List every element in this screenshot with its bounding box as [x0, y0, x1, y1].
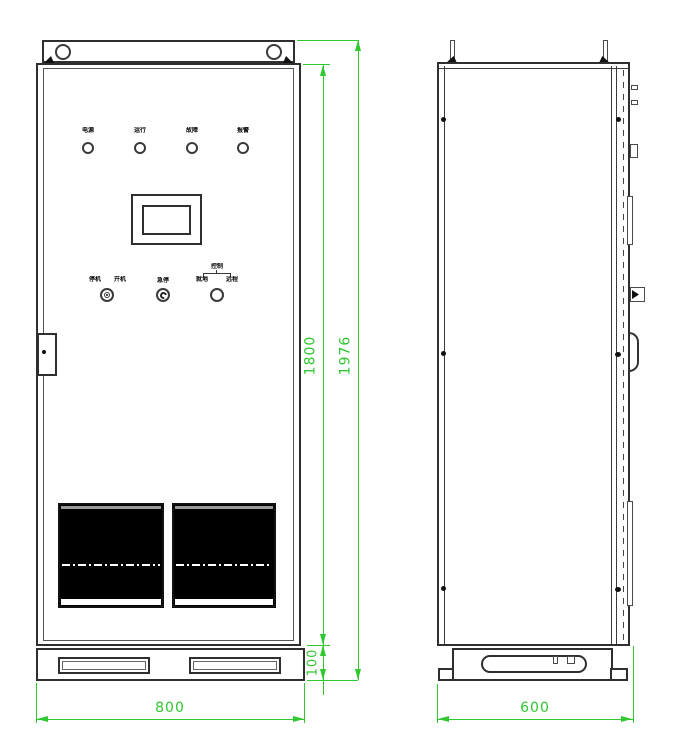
hmi-display-screen	[142, 205, 191, 235]
vent-right-centerline	[176, 564, 272, 566]
dim-text-1800: 1800	[304, 333, 319, 379]
arrow-800-right	[293, 716, 304, 722]
arrow-1976-top	[355, 40, 361, 51]
screw-front-bottom	[615, 587, 621, 592]
mode-button	[210, 288, 224, 302]
vent-panel-left	[58, 503, 164, 608]
hinge-nub-second	[631, 100, 638, 105]
hinge-block-upper	[630, 144, 638, 158]
arrow-1976-bottom	[355, 669, 361, 680]
mode-option-labels: 就地 远程	[196, 276, 238, 284]
cabinet-body-side	[437, 62, 630, 646]
indicator-label-4: 报警	[227, 127, 259, 135]
indicator-lamp-1	[82, 142, 94, 154]
dim-line-1800	[323, 65, 324, 645]
door-latch-housing	[630, 287, 645, 302]
vent-right-bottom-strip	[175, 599, 273, 605]
ext-line-800-right	[304, 683, 305, 723]
ext-line-600-right	[633, 646, 634, 723]
vent-left-top-strip	[61, 506, 161, 509]
selector-labels: 停机 开机	[89, 276, 126, 284]
screw-rear-bottom	[441, 586, 446, 591]
screw-rear-mid	[441, 351, 446, 356]
arrow-1800-top	[320, 65, 326, 76]
base-slot-right-inner	[193, 661, 277, 670]
dim-line-800	[36, 719, 305, 720]
arrow-100-top	[320, 645, 326, 656]
base-foot-rear	[438, 668, 454, 681]
dim-line-600	[437, 719, 633, 720]
hinge-plate-upper	[627, 196, 633, 245]
mode-bracket-bar	[203, 273, 231, 274]
dim-text-100: 100	[306, 646, 321, 680]
base-cutout-tab-1	[553, 656, 558, 664]
emergency-label: 急停	[152, 277, 174, 285]
arrow-800-left	[37, 716, 48, 722]
side-front-frame-line	[611, 66, 612, 644]
selector-label-left: 停机	[89, 276, 101, 284]
mode-title-label: 控制	[206, 263, 228, 271]
base-slot-left	[58, 657, 150, 674]
indicator-lamp-3	[186, 142, 198, 154]
indicator-lamp-2	[134, 142, 146, 154]
arrow-600-left	[438, 716, 449, 722]
screw-front-top	[616, 117, 621, 122]
mode-option-right: 远程	[226, 276, 238, 284]
hinge-nub-top	[631, 85, 638, 90]
vent-panel-right	[172, 503, 276, 608]
ext-line-plate-top	[297, 40, 358, 41]
arrow-600-right	[621, 716, 632, 722]
lifting-eye-right-icon	[266, 44, 282, 60]
lifting-eye-left-icon	[55, 44, 71, 60]
vent-right-top-strip	[175, 506, 273, 509]
dim-line-1976	[358, 40, 359, 680]
vent-left-bottom-strip	[61, 599, 161, 605]
dim-text-800: 800	[148, 701, 192, 716]
door-lock-plate	[37, 333, 57, 376]
side-top-plate-line	[439, 68, 628, 69]
drawing-canvas: 电源 运行 故障 报警 停机 开机 急停 控制 就地 远程	[0, 0, 677, 734]
lifting-plate	[42, 40, 295, 63]
door-handle-side	[629, 332, 639, 372]
indicator-label-3: 故障	[176, 127, 208, 135]
screw-rear-top	[441, 117, 446, 122]
arrow-1800-bottom	[320, 634, 326, 645]
dim-text-600: 600	[513, 701, 557, 716]
emergency-button	[156, 288, 170, 302]
base-slot-right	[189, 657, 281, 674]
base-slot-left-inner	[62, 661, 146, 670]
selector-switch-dot	[106, 294, 108, 296]
vent-left-centerline	[62, 564, 160, 566]
indicator-lamp-4	[237, 142, 249, 154]
ext-line-base-bottom	[307, 680, 358, 681]
cabinet-base-front	[36, 648, 305, 681]
arrow-100-bottom	[320, 669, 326, 680]
emergency-button-arc	[158, 290, 168, 300]
screw-front-mid	[615, 352, 621, 357]
side-hinge-axis-dashed	[623, 70, 624, 642]
selector-label-right: 开机	[114, 276, 126, 284]
selector-switch-knob	[100, 288, 114, 302]
door-latch-tongue	[632, 290, 639, 299]
indicator-label-1: 电源	[72, 127, 104, 135]
base-foot-front	[610, 668, 628, 681]
door-lock-keyhole	[42, 350, 46, 354]
dim-text-1976: 1976	[339, 333, 354, 379]
indicator-label-2: 运行	[124, 127, 156, 135]
hinge-plate-lower	[627, 501, 633, 606]
mode-option-left: 就地	[196, 276, 208, 284]
base-cutout-tab-2	[567, 656, 575, 664]
